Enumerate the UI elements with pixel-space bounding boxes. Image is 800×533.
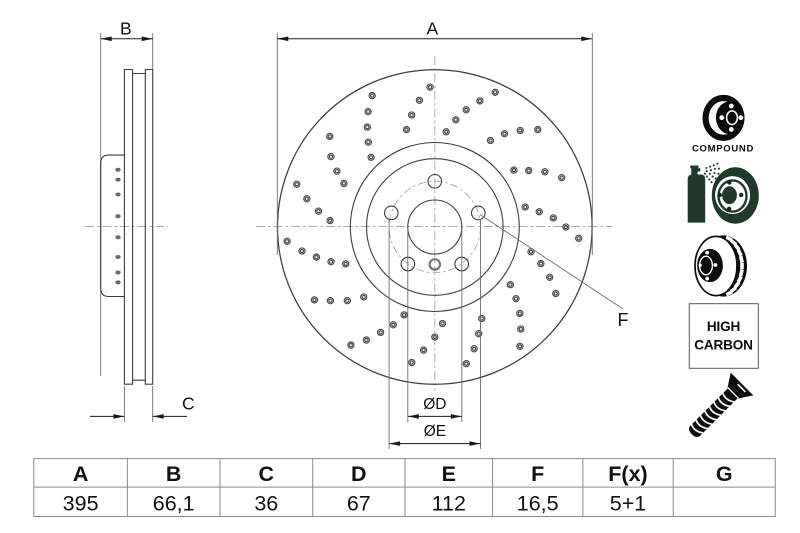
svg-text:HIGH: HIGH: [707, 319, 740, 334]
svg-text:D: D: [351, 462, 367, 486]
svg-text:B: B: [166, 462, 182, 486]
svg-text:5+1: 5+1: [610, 492, 646, 516]
svg-text:ØD: ØD: [423, 396, 446, 413]
svg-text:112: 112: [432, 492, 466, 516]
svg-text:F: F: [618, 310, 629, 330]
svg-text:F: F: [531, 462, 544, 486]
svg-text:C: C: [259, 462, 275, 486]
svg-text:67: 67: [347, 492, 371, 516]
svg-text:36: 36: [254, 492, 278, 516]
svg-text:G: G: [716, 462, 733, 486]
svg-text:66,1: 66,1: [153, 492, 195, 516]
svg-text:16,5: 16,5: [517, 492, 559, 516]
svg-text:COMPOUND: COMPOUND: [692, 144, 754, 155]
svg-text:A: A: [427, 18, 439, 38]
svg-text:B: B: [120, 18, 132, 38]
svg-text:CARBON: CARBON: [694, 338, 752, 353]
svg-text:C: C: [182, 394, 195, 414]
svg-text:A: A: [73, 462, 89, 486]
svg-text:395: 395: [63, 492, 99, 516]
svg-text:ØE: ØE: [424, 423, 446, 440]
svg-text:F(x): F(x): [608, 462, 647, 486]
svg-text:E: E: [442, 462, 456, 486]
